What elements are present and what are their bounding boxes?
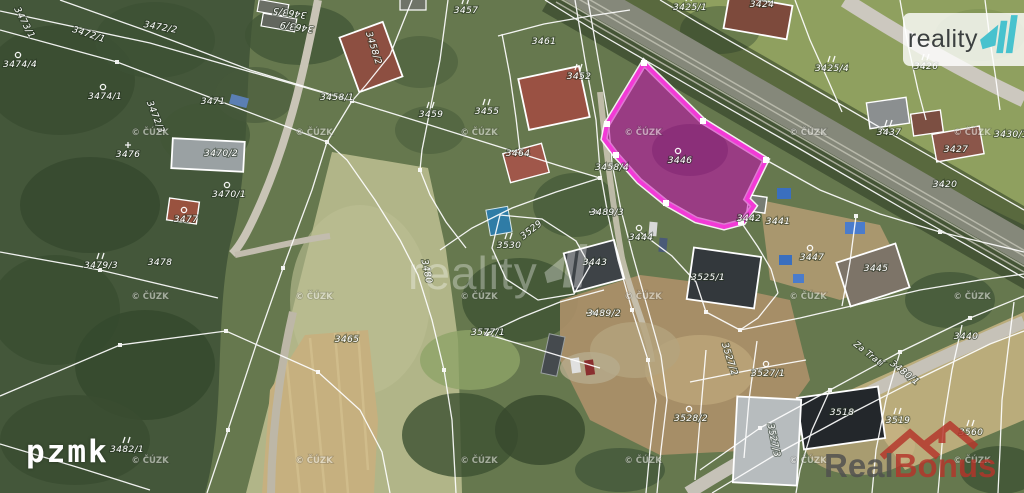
parcel-label: 3446 (668, 155, 693, 166)
parcel-label: 3455 (475, 106, 500, 117)
parcel-label: 3458/1 (320, 92, 354, 103)
copyright-watermark: © ČÚZK (131, 454, 169, 466)
parcel-label: 3430/1 (994, 129, 1024, 140)
parcel-label: 3445 (864, 263, 889, 274)
parcel-label: 3527/1 (751, 368, 785, 379)
building (733, 396, 801, 485)
copyright-watermark: © ČÚZK (131, 290, 169, 302)
copyright-watermark: © ČÚZK (789, 290, 827, 302)
parcel-label: 3465 (335, 334, 360, 345)
parcel-label: 3471 (201, 96, 226, 107)
copyright-watermark: © ČÚZK (789, 454, 827, 466)
map-canvas: 3463/53463/93473/13472/13472/23474/43474… (0, 0, 1024, 493)
parcel-label: 3482/1 (110, 444, 144, 455)
copyright-watermark: © ČÚZK (789, 126, 827, 138)
parcel-label: 3457 (454, 5, 479, 16)
building (911, 110, 944, 136)
parcel-label: 3470/2 (204, 148, 238, 159)
parcel-label: 3424 (750, 0, 775, 10)
parcel-label: 3530 (497, 240, 522, 251)
parcel-label: 3474/4 (3, 59, 37, 70)
parcel-label: 3479/3 (84, 260, 118, 271)
pzmk-watermark: pzmk (26, 434, 109, 470)
copyright-watermark: © ČÚZK (953, 126, 991, 138)
building (400, 0, 426, 10)
copyright-watermark: © ČÚZK (460, 126, 498, 138)
parcel-label: 3440 (954, 331, 979, 342)
parcel-label: 3427 (944, 144, 969, 155)
copyright-watermark: © ČÚZK (624, 290, 662, 302)
parcel-label: 3443 (583, 257, 608, 268)
parcel-label: 3477 (174, 214, 199, 225)
parcel-label: 3425/1 (673, 2, 707, 13)
reality11-logo: reality (903, 13, 1024, 66)
parcel-label: 3447 (800, 252, 825, 263)
parcel-label: 3470/1 (212, 189, 246, 200)
parcel-label: 3525/1 (691, 272, 725, 283)
copyright-watermark: © ČÚZK (953, 290, 991, 302)
parcel-label: 3478 (148, 257, 173, 268)
copyright-watermark: © ČÚZK (131, 126, 169, 138)
copyright-watermark: © ČÚZK (460, 290, 498, 302)
parcel-label: 3461 (532, 36, 557, 47)
copyright-watermark: © ČÚZK (624, 454, 662, 466)
parcel-label: 3420 (933, 179, 958, 190)
copyright-watermark: © ČÚZK (295, 290, 333, 302)
parcel-label: 3476 (116, 149, 141, 160)
realbonus-logo: RealBonus (824, 421, 1024, 487)
parcel-label: 3425/4 (815, 63, 849, 74)
parcel-label: 3437 (877, 127, 902, 138)
parcel-label: 3442 (737, 213, 762, 224)
parcel-label: 3441 (766, 216, 791, 227)
realbonus-text: RealBonus (824, 447, 996, 485)
realbonus-text-real: Real (824, 447, 894, 484)
parcel-label: 3464 (506, 148, 531, 159)
reality11-logo-text: reality (908, 25, 978, 54)
parcel-label: 3489/3 (590, 207, 624, 218)
copyright-watermark: © ČÚZK (295, 126, 333, 138)
copyright-watermark: © ČÚZK (295, 454, 333, 466)
parcel-label: 3452 (567, 71, 592, 82)
parcel-label: 3474/1 (88, 91, 122, 102)
parcel-label: 3518 (830, 407, 855, 418)
parcel-label: 3577/1 (471, 327, 505, 338)
parcel-label: 3489/2 (587, 308, 621, 319)
parcel-label: 3459 (419, 109, 444, 120)
parcel-label: 3444 (629, 232, 654, 243)
realbonus-text-bonus: Bonus (894, 447, 997, 484)
reality11-glyph-icon (980, 13, 1018, 59)
aerial-cadastral-map[interactable]: 3463/53463/93473/13472/13472/23474/43474… (0, 0, 1024, 493)
copyright-watermark: © ČÚZK (624, 126, 662, 138)
parcel-label: 3458/4 (595, 162, 629, 173)
copyright-watermark: © ČÚZK (460, 454, 498, 466)
parcel-label: 3528/2 (674, 413, 708, 424)
